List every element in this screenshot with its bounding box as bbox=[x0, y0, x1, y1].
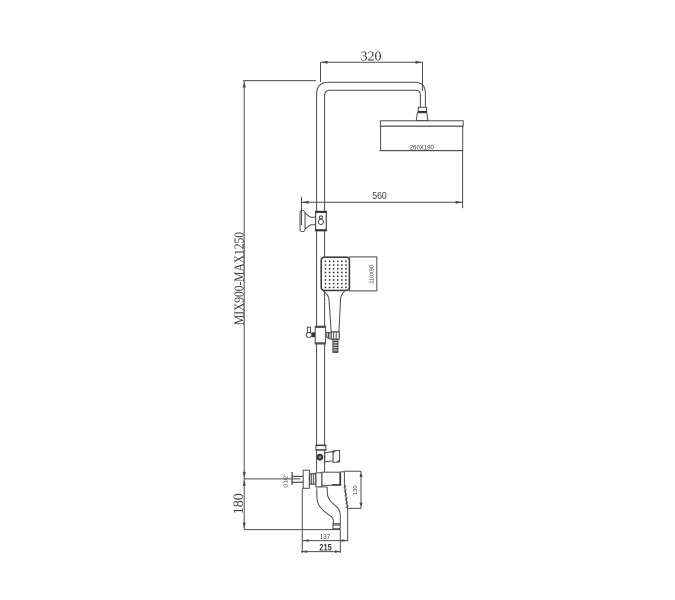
svg-text:MIX900-MAX1250: MIX900-MAX1250 bbox=[232, 232, 247, 325]
svg-text:260X190: 260X190 bbox=[410, 146, 435, 152]
svg-text:320: 320 bbox=[361, 50, 382, 65]
svg-text:560: 560 bbox=[372, 190, 387, 202]
svg-text:G1/2": G1/2" bbox=[284, 474, 290, 488]
svg-text:215: 215 bbox=[319, 542, 332, 552]
svg-text:137: 137 bbox=[320, 534, 331, 541]
svg-text:130: 130 bbox=[353, 485, 359, 495]
svg-text:180: 180 bbox=[231, 493, 247, 514]
svg-text:110X90: 110X90 bbox=[369, 265, 375, 284]
